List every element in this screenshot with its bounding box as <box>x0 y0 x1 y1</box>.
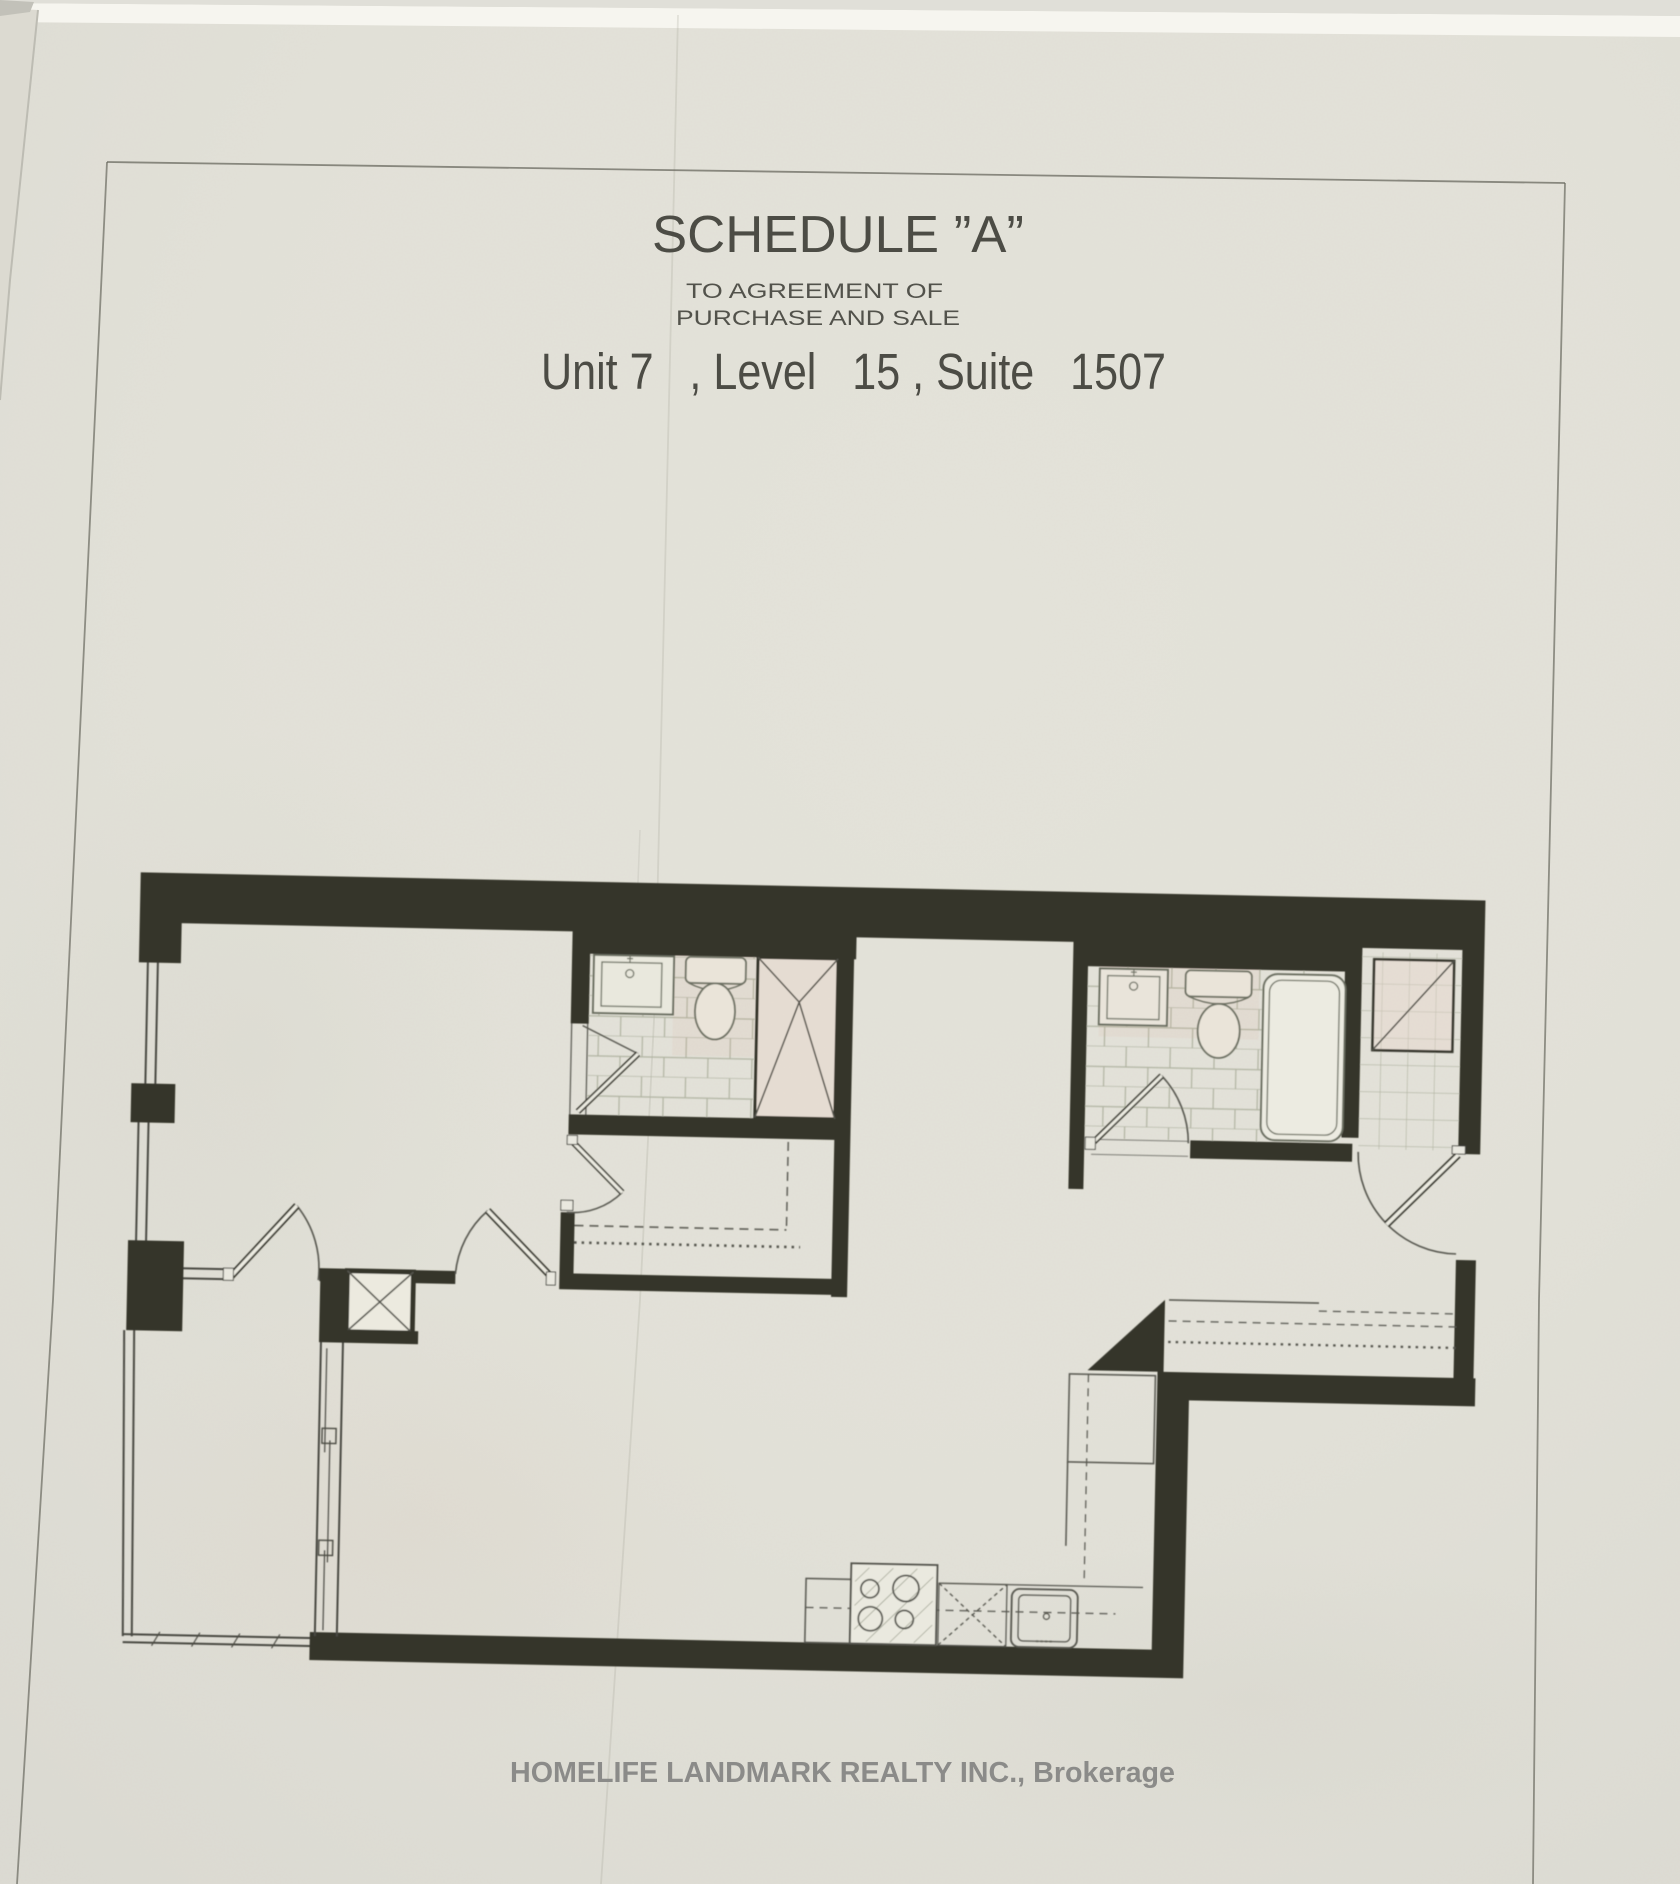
svg-text:Unit 7 , Level 15 , Suite: Unit 7 , Level 15 , Suite 1507 <box>541 343 1166 400</box>
svg-text:HOMELIFE LANDMARK REALTY INC.,: HOMELIFE LANDMARK REALTY INC., Brokerage <box>510 1757 1175 1789</box>
svg-text:PURCHASE AND SALE: PURCHASE AND SALE <box>676 306 960 330</box>
svg-text:SCHEDULE ”A”: SCHEDULE ”A” <box>652 206 1024 264</box>
svg-text:TO AGREEMENT OF: TO AGREEMENT OF <box>686 279 943 303</box>
